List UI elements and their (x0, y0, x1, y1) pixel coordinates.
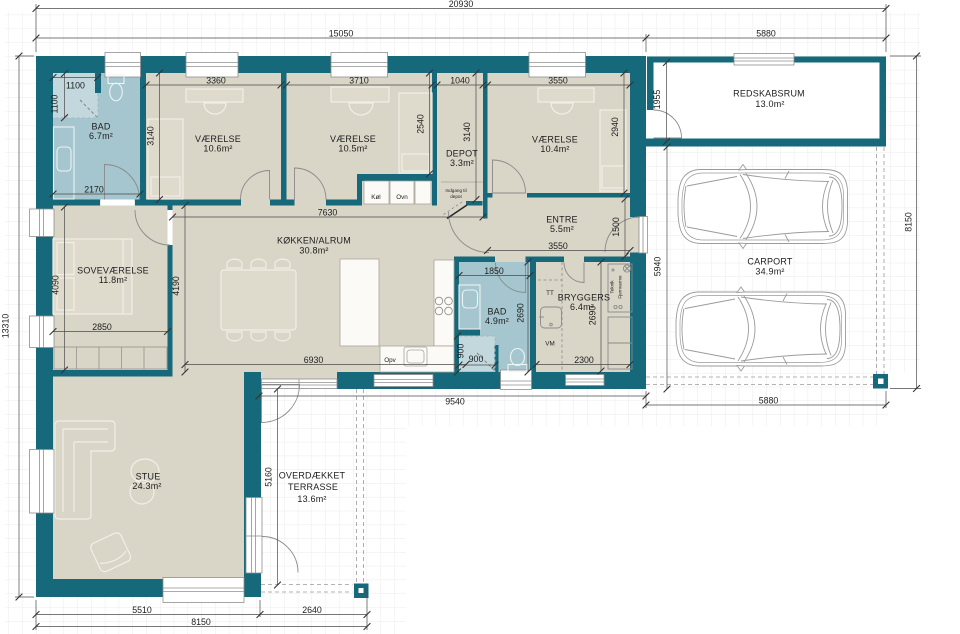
svg-text:2540: 2540 (416, 114, 426, 134)
svg-text:8150: 8150 (191, 617, 211, 627)
svg-text:2300: 2300 (574, 355, 594, 365)
svg-text:BAD: BAD (487, 307, 506, 317)
svg-text:TERRASSE: TERRASSE (288, 482, 338, 492)
svg-text:4.9m²: 4.9m² (485, 316, 509, 326)
svg-text:BRYGGERS: BRYGGERS (558, 293, 610, 303)
svg-text:4090: 4090 (51, 275, 61, 295)
svg-text:2940: 2940 (610, 117, 620, 137)
svg-text:34.9m²: 34.9m² (755, 267, 784, 277)
svg-text:VÆRELSE: VÆRELSE (330, 134, 376, 144)
svg-text:5510: 5510 (132, 605, 152, 615)
svg-text:3140: 3140 (462, 122, 472, 142)
svg-text:Opv: Opv (384, 357, 396, 364)
svg-text:DEPOT: DEPOT (446, 149, 478, 159)
svg-text:900: 900 (469, 354, 484, 364)
svg-text:4190: 4190 (171, 276, 181, 296)
svg-text:CARPORT: CARPORT (747, 257, 793, 267)
svg-text:15050: 15050 (329, 29, 354, 39)
svg-text:5880: 5880 (756, 29, 776, 39)
svg-text:2170: 2170 (84, 185, 104, 195)
svg-text:REDSKABSRUM: REDSKABSRUM (733, 89, 805, 99)
svg-text:24.3m²: 24.3m² (132, 481, 161, 491)
svg-text:3710: 3710 (349, 76, 369, 86)
svg-text:5880: 5880 (759, 396, 779, 406)
svg-text:5160: 5160 (264, 467, 274, 487)
svg-text:VÆRELSE: VÆRELSE (195, 134, 241, 144)
svg-text:5.5m²: 5.5m² (550, 224, 574, 234)
svg-text:6.4m²: 6.4m² (570, 302, 594, 312)
svg-text:VÆRELSE: VÆRELSE (532, 135, 578, 145)
svg-text:20930: 20930 (449, 0, 474, 9)
svg-text:6930: 6930 (304, 355, 324, 365)
svg-text:10.6m²: 10.6m² (203, 144, 232, 154)
svg-text:1100: 1100 (66, 81, 85, 91)
svg-text:3.3m²: 3.3m² (450, 158, 474, 168)
svg-text:10.4m²: 10.4m² (540, 144, 569, 154)
svg-text:9540: 9540 (445, 397, 465, 407)
svg-text:STUE: STUE (136, 472, 161, 482)
svg-text:8150: 8150 (904, 212, 914, 232)
svg-text:Fjernvarme: Fjernvarme (618, 275, 623, 299)
svg-text:30.8m²: 30.8m² (299, 246, 328, 256)
svg-text:VM: VM (545, 341, 554, 348)
svg-text:2690: 2690 (516, 303, 526, 323)
svg-text:BAD: BAD (91, 122, 110, 132)
svg-text:6.7m²: 6.7m² (89, 131, 113, 141)
svg-text:3550: 3550 (548, 76, 568, 86)
svg-text:1500: 1500 (611, 217, 621, 237)
svg-text:ENTRE: ENTRE (546, 215, 578, 225)
svg-text:5940: 5940 (653, 257, 663, 277)
svg-text:Teknik: Teknik (610, 280, 615, 294)
svg-text:Køl: Køl (371, 194, 380, 201)
svg-text:Indgang til: Indgang til (445, 188, 466, 193)
svg-text:KØKKEN/ALRUM: KØKKEN/ALRUM (277, 236, 351, 246)
svg-text:1850: 1850 (484, 266, 504, 276)
svg-text:3550: 3550 (548, 241, 568, 251)
svg-text:1040: 1040 (450, 76, 470, 86)
svg-text:2850: 2850 (92, 322, 112, 332)
svg-text:900: 900 (456, 344, 466, 359)
svg-text:1100: 1100 (50, 94, 60, 113)
svg-text:SOVEVÆRELSE: SOVEVÆRELSE (77, 266, 149, 276)
svg-text:7630: 7630 (318, 208, 338, 218)
svg-text:3140: 3140 (146, 126, 156, 146)
svg-text:13.6m²: 13.6m² (297, 494, 326, 504)
svg-text:OVERDÆKKET: OVERDÆKKET (279, 471, 346, 481)
svg-text:Ovn: Ovn (396, 194, 408, 201)
svg-text:10.5m²: 10.5m² (338, 144, 367, 154)
svg-text:13.0m²: 13.0m² (755, 99, 784, 109)
svg-text:3360: 3360 (206, 76, 226, 86)
svg-text:depot: depot (450, 194, 462, 199)
svg-text:2640: 2640 (302, 605, 322, 615)
svg-text:11.8m²: 11.8m² (99, 275, 128, 285)
svg-text:1955: 1955 (652, 90, 662, 110)
svg-text:13310: 13310 (1, 314, 11, 339)
svg-text:TT: TT (546, 290, 554, 297)
